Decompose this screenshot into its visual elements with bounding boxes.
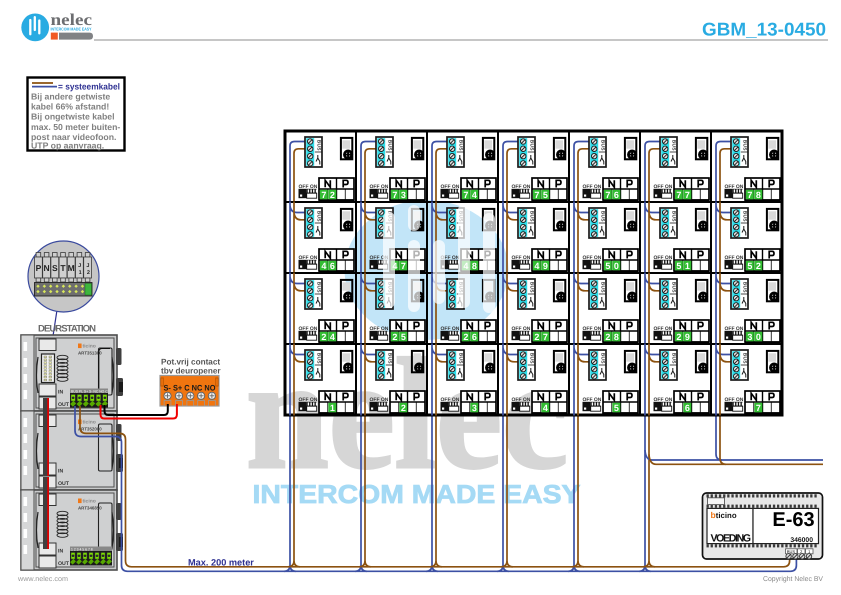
svg-text:3: 3 bbox=[401, 190, 406, 200]
svg-text:2: 2 bbox=[392, 332, 397, 342]
svg-text:7: 7 bbox=[534, 190, 539, 200]
svg-text:OUT: OUT bbox=[58, 402, 70, 408]
svg-text:4: 4 bbox=[321, 261, 326, 271]
svg-text:5: 5 bbox=[747, 261, 752, 271]
svg-text:6: 6 bbox=[330, 261, 335, 271]
svg-text:7: 7 bbox=[321, 190, 326, 200]
svg-text:1: 1 bbox=[79, 270, 82, 276]
svg-text:6: 6 bbox=[472, 332, 477, 342]
svg-text:ticino: ticino bbox=[83, 344, 96, 350]
svg-text:OUT: OUT bbox=[58, 481, 70, 487]
svg-text:T: T bbox=[60, 263, 66, 273]
svg-text:1: 1 bbox=[330, 403, 335, 413]
svg-text:4: 4 bbox=[534, 261, 539, 271]
svg-text:5: 5 bbox=[614, 403, 619, 413]
svg-text:VOEDING: VOEDING bbox=[711, 533, 752, 545]
svg-text:5: 5 bbox=[605, 261, 610, 271]
svg-text:9: 9 bbox=[685, 332, 690, 342]
svg-text:UTP op aanvraag.: UTP op aanvraag. bbox=[31, 141, 104, 151]
svg-text:ticino: ticino bbox=[716, 511, 737, 520]
svg-text:ticino: ticino bbox=[83, 420, 96, 426]
svg-text:7: 7 bbox=[401, 261, 406, 271]
svg-text:OUT: OUT bbox=[58, 561, 70, 567]
svg-text:5: 5 bbox=[676, 261, 681, 271]
svg-text:ticino: ticino bbox=[83, 499, 96, 505]
svg-text:IN: IN bbox=[58, 469, 63, 475]
svg-text:6: 6 bbox=[685, 403, 690, 413]
svg-text:www.nelec.com: www.nelec.com bbox=[17, 575, 68, 583]
svg-text:2: 2 bbox=[463, 332, 468, 342]
svg-text:M: M bbox=[68, 263, 75, 273]
svg-text:ART346850: ART346850 bbox=[78, 506, 102, 511]
svg-text:kabel 66% afstand!: kabel 66% afstand! bbox=[31, 102, 109, 112]
svg-text:J: J bbox=[86, 263, 89, 269]
svg-text:4: 4 bbox=[472, 190, 477, 200]
svg-text:E-63: E-63 bbox=[772, 509, 814, 531]
svg-text:2: 2 bbox=[330, 190, 335, 200]
svg-text:S- S+ C NC NO: S- S+ C NC NO bbox=[164, 384, 216, 393]
svg-text:2: 2 bbox=[605, 332, 610, 342]
svg-text:BUS PL S+ S- NC NO C: BUS PL S+ S- NC NO C bbox=[71, 389, 108, 393]
svg-text:Bij andere getwiste: Bij andere getwiste bbox=[31, 92, 110, 102]
svg-text:IN: IN bbox=[58, 549, 63, 555]
svg-text:7: 7 bbox=[756, 403, 761, 413]
svg-text:3: 3 bbox=[747, 332, 752, 342]
svg-text:5: 5 bbox=[401, 332, 406, 342]
svg-text:4: 4 bbox=[543, 403, 548, 413]
svg-text:7: 7 bbox=[747, 190, 752, 200]
svg-text:5: 5 bbox=[543, 190, 548, 200]
svg-text:J: J bbox=[78, 263, 81, 269]
svg-text:INTERCOM MADE EASY: INTERCOM MADE EASY bbox=[253, 479, 581, 509]
svg-text:2: 2 bbox=[321, 332, 326, 342]
svg-text:2: 2 bbox=[756, 261, 761, 271]
svg-text:1 2 3 4 5 6 7 8: 1 2 3 4 5 6 7 8 bbox=[71, 547, 93, 551]
svg-text:GBM_13-0450: GBM_13-0450 bbox=[702, 19, 826, 40]
svg-text:2: 2 bbox=[87, 270, 90, 276]
svg-text:0: 0 bbox=[756, 332, 761, 342]
svg-text:tbv deuropener: tbv deuropener bbox=[161, 367, 221, 376]
svg-text:8: 8 bbox=[756, 190, 761, 200]
svg-text:7: 7 bbox=[392, 190, 397, 200]
svg-text:Max. 200 meter: Max. 200 meter bbox=[188, 558, 254, 568]
svg-text:2: 2 bbox=[676, 332, 681, 342]
svg-text:7: 7 bbox=[463, 190, 468, 200]
svg-text:max. 50 meter buiten-: max. 50 meter buiten- bbox=[31, 122, 120, 132]
svg-text:8: 8 bbox=[614, 332, 619, 342]
svg-text:7: 7 bbox=[605, 190, 610, 200]
svg-text:= systeemkabel: = systeemkabel bbox=[58, 82, 120, 92]
svg-text:0: 0 bbox=[614, 261, 619, 271]
svg-text:N: N bbox=[44, 263, 50, 273]
svg-text:Bij ongetwiste kabel: Bij ongetwiste kabel bbox=[31, 112, 115, 122]
svg-text:7: 7 bbox=[685, 190, 690, 200]
svg-text:Copyright Nelec BV: Copyright Nelec BV bbox=[763, 575, 823, 583]
svg-text:IN: IN bbox=[58, 390, 63, 396]
svg-text:P: P bbox=[36, 263, 42, 273]
svg-text:Pot.vrij contact: Pot.vrij contact bbox=[161, 358, 220, 367]
svg-text:8: 8 bbox=[472, 261, 477, 271]
svg-text:2: 2 bbox=[401, 403, 406, 413]
svg-text:4: 4 bbox=[330, 332, 335, 342]
svg-text:INTERCOM MADE EASY: INTERCOM MADE EASY bbox=[51, 26, 92, 31]
svg-text:3: 3 bbox=[472, 403, 477, 413]
svg-text:346000: 346000 bbox=[790, 537, 813, 544]
svg-text:DEURSTATION: DEURSTATION bbox=[38, 324, 96, 335]
svg-text:6: 6 bbox=[614, 190, 619, 200]
svg-text:S: S bbox=[52, 263, 58, 273]
svg-text:1: 1 bbox=[685, 261, 690, 271]
svg-text:7: 7 bbox=[676, 190, 681, 200]
svg-text:7: 7 bbox=[543, 332, 548, 342]
svg-text:2: 2 bbox=[534, 332, 539, 342]
svg-text:9: 9 bbox=[543, 261, 548, 271]
